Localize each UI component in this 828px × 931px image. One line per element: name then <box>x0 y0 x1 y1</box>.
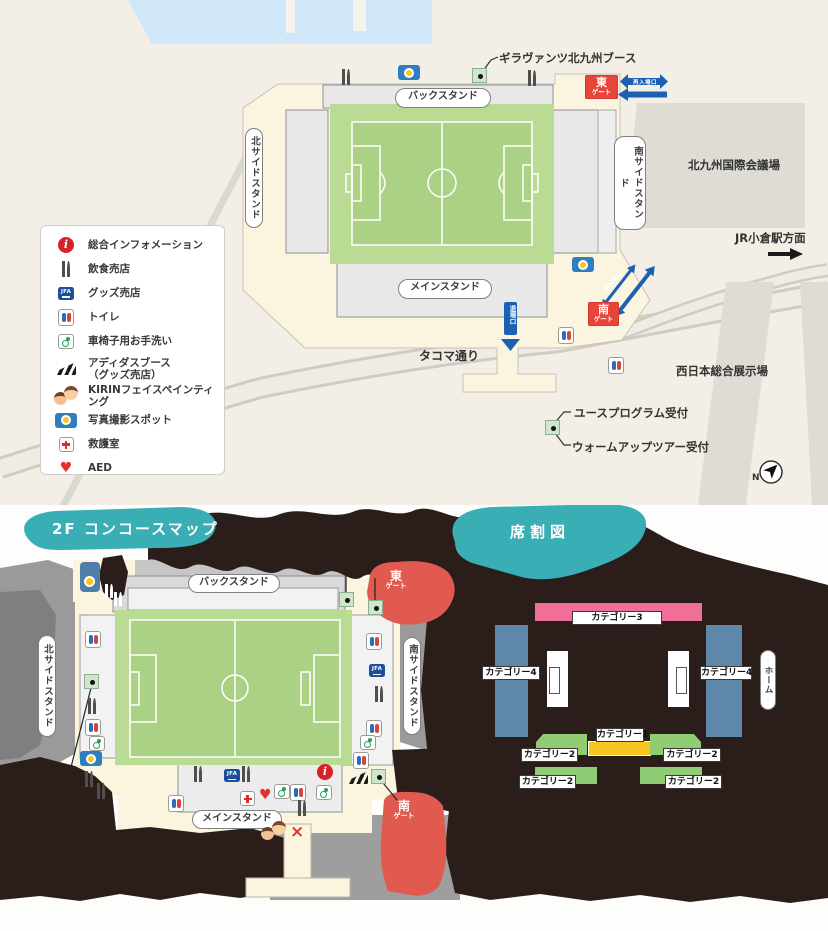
toilet-icon <box>558 327 574 344</box>
aid-icon <box>59 437 74 452</box>
category2-label-ul: カテゴリー2 <box>521 748 578 762</box>
goal-left <box>549 667 560 694</box>
legend-item-adidas: アディダスブース（グッズ売店） <box>54 353 224 384</box>
booth-icon <box>371 769 386 784</box>
info-icon: i <box>317 764 333 780</box>
aed-icon: ♥ <box>259 788 272 802</box>
toilet-icon <box>366 633 382 650</box>
category4-label-right: カテゴリー4 <box>700 666 752 680</box>
jfa-icon: JFA <box>369 664 385 677</box>
legend-item-aid: 救護室 <box>54 432 224 456</box>
kirin-icon <box>54 386 78 407</box>
camera2-icon <box>80 562 100 592</box>
goal-right <box>676 667 687 694</box>
fork-icon <box>341 69 351 85</box>
legend-label: 総合インフォメーション <box>88 239 203 251</box>
category3-label: カテゴリー3 <box>572 611 662 625</box>
fork-icon <box>61 261 71 277</box>
camera-icon <box>55 413 77 428</box>
toilet-icon <box>353 752 369 769</box>
legend-label: AED <box>88 462 112 474</box>
toilet-icon <box>58 309 74 326</box>
south-stand-label-2f: 南サイドスタンド <box>403 637 421 735</box>
category2-label-lr: カテゴリー2 <box>665 775 722 789</box>
category4-label-left: カテゴリー4 <box>482 666 540 680</box>
reentry-label: 再入場口 <box>629 78 661 86</box>
north-stand-label-2f: 北サイドスタンド <box>38 635 56 737</box>
legend-label: 車椅子用お手洗い <box>88 335 172 347</box>
booth-icon <box>545 420 560 435</box>
fork-icon <box>193 766 203 782</box>
wheel-icon <box>316 785 332 800</box>
legend-item-jfa: JFAグッズ売店 <box>54 281 224 305</box>
toilet-icon <box>85 719 101 736</box>
legend-item-camera: 写真撮影スポット <box>54 408 224 432</box>
category4-stand-left <box>495 625 528 737</box>
legend-label: アディダスブース（グッズ売店） <box>88 357 171 381</box>
wheel-icon <box>89 736 105 751</box>
wheel-icon <box>360 735 376 750</box>
adidas-icon <box>56 362 76 375</box>
legend-box: i総合インフォメーション飲食売店JFAグッズ売店トイレ車椅子用お手洗いアディダス… <box>40 225 225 475</box>
booth-icon <box>472 68 487 83</box>
legend-label: KIRINフェイスペインティング <box>88 384 224 408</box>
fork-icon <box>96 783 106 799</box>
wheel-icon <box>274 784 290 799</box>
category2-label-ll: カテゴリー2 <box>519 775 576 789</box>
home-side-label: ホーム <box>760 650 776 710</box>
wheel-icon <box>58 334 74 349</box>
legend-label: 救護室 <box>88 438 120 450</box>
legend-label: 飲食売店 <box>88 263 130 275</box>
legend-item-toilet: トイレ <box>54 305 224 329</box>
kirin-icon <box>261 821 286 842</box>
legend-label: トイレ <box>88 311 120 323</box>
fork-icon <box>241 766 251 782</box>
legend-item-info: i総合インフォメーション <box>54 233 224 257</box>
toilet-icon <box>168 795 184 812</box>
camera-icon <box>398 65 420 80</box>
fork-icon <box>84 771 94 787</box>
fork-icon <box>527 70 537 86</box>
concourse-map-title: 2F コンコースマップ <box>52 518 219 539</box>
east-gate-char: 東 <box>378 570 414 582</box>
jfa-icon: JFA <box>224 769 240 782</box>
forkw-icon <box>113 592 123 606</box>
stadium-guide-map: i総合インフォメーション飲食売店JFAグッズ売店トイレ車椅子用お手洗いアディダス… <box>0 0 828 931</box>
booth-icon <box>368 600 383 615</box>
legend-item-wheel: 車椅子用お手洗い <box>54 329 224 353</box>
booth-icon <box>339 592 354 607</box>
category1-label: カテゴリー1 <box>596 728 644 742</box>
booth-icon <box>84 674 99 689</box>
legend-item-kirin: KIRINフェイスペインティング <box>54 384 224 408</box>
toilet-icon <box>290 784 306 801</box>
gate-word: ゲート <box>386 812 422 821</box>
legend-item-aed: ♥AED <box>54 456 224 480</box>
toilet-icon <box>608 357 624 374</box>
fork-icon <box>87 698 97 714</box>
jfa-icon: JFA <box>58 287 74 300</box>
adidas-icon <box>348 771 368 784</box>
camera-icon <box>80 751 102 766</box>
seat-map-title: 席割図 <box>510 521 570 542</box>
exit-gate-label: 退場口 <box>507 305 517 325</box>
category2-label-ur: カテゴリー2 <box>663 748 721 762</box>
category1-stand <box>588 741 651 756</box>
aid-icon <box>240 791 255 806</box>
concourse-and-seating-section: 2F コンコースマップ 席割図 バックスタンド メインスタンド 北サイドスタンド… <box>0 505 828 931</box>
legend-label: 写真撮影スポット <box>88 414 172 426</box>
cross-icon: × <box>290 824 304 840</box>
camera-icon <box>572 257 594 272</box>
fork-icon <box>297 800 307 816</box>
category4-stand-right <box>706 625 742 737</box>
info-icon: i <box>58 237 74 253</box>
gate-word: ゲート <box>378 582 414 591</box>
aed-icon: ♥ <box>60 461 73 475</box>
legend-label: グッズ売店 <box>88 287 141 299</box>
back-stand-label-2f: バックスタンド <box>188 574 280 593</box>
toilet-icon <box>85 631 101 648</box>
east-gate-label-2f: 東 ゲート <box>378 570 414 591</box>
south-gate-label-2f: 南 ゲート <box>386 800 422 821</box>
south-gate-char: 南 <box>386 800 422 812</box>
fork-icon <box>374 686 384 702</box>
legend-item-fork: 飲食売店 <box>54 257 224 281</box>
